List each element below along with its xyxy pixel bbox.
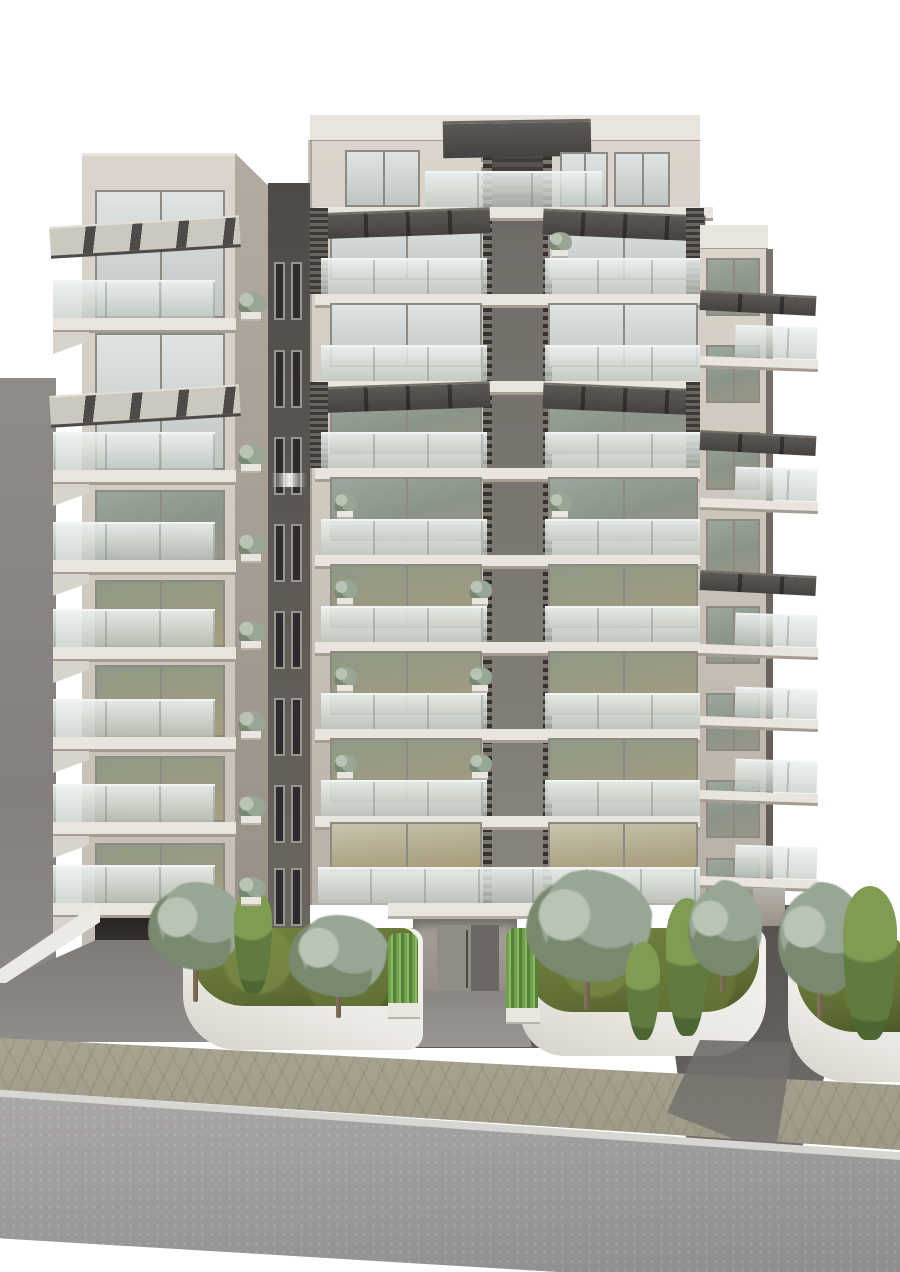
left-tower-balcony-slab [53, 560, 236, 575]
left-tower-balcony-slab [53, 822, 236, 837]
connector-window [274, 611, 285, 669]
balcony-bush [333, 667, 357, 687]
connector-window [291, 524, 302, 582]
right-wing-balcony-rail [735, 687, 818, 720]
right-wing-balcony-rail [734, 325, 817, 360]
architectural-rendering-canvas [0, 0, 900, 1272]
left-tower-balcony-slab [53, 470, 236, 485]
center-tower-window-right [548, 822, 698, 872]
left-tower-balcony-rail [53, 522, 215, 560]
center-tower-rail-right [545, 780, 705, 816]
right-wing-parapet [700, 225, 768, 249]
balcony-bush [236, 711, 266, 733]
olive-tree [288, 915, 390, 997]
connector-window [291, 868, 302, 926]
bamboo-planter-box [506, 1008, 540, 1024]
olive-tree [148, 882, 246, 970]
left-tower-balcony-rail [53, 784, 215, 822]
connector-window [274, 524, 285, 582]
connector-window [274, 262, 285, 320]
balcony-pot [472, 772, 488, 780]
bamboo-plant [388, 933, 418, 1005]
right-wing-balcony-rail [734, 759, 817, 794]
balcony-bush [333, 580, 357, 600]
center-tower-rail-left [321, 519, 487, 555]
balcony-pot [337, 598, 353, 606]
balcony-pot [241, 641, 261, 650]
center-tower-rail-right [545, 606, 705, 642]
penthouse-window [345, 150, 420, 207]
balcony-pot [337, 685, 353, 693]
right-wing-balcony-rail [734, 467, 817, 502]
right-wing-balcony-rail [734, 613, 817, 648]
olive-tree [688, 880, 762, 976]
balcony-bush [333, 754, 357, 774]
connector-window [291, 698, 302, 756]
left-tower-balcony-slab [53, 318, 236, 333]
center-tower-rail-left [321, 780, 487, 816]
connector-window [274, 868, 285, 926]
center-tower-rail-left [321, 606, 487, 642]
penthouse-terrace-rail [425, 171, 602, 207]
center-tower-rail-right [545, 258, 705, 294]
balcony-bush [236, 877, 266, 899]
connector-window [291, 611, 302, 669]
center-tower-window-left [330, 822, 482, 872]
neighboring-building-wall [0, 378, 56, 978]
connector-window [291, 350, 302, 408]
balcony-pot [241, 897, 261, 906]
left-tower-balcony-rail [53, 280, 215, 318]
center-tower-rail-right [545, 432, 705, 468]
center-tower-rail-left [321, 693, 487, 729]
center-tower-rail-left [321, 258, 487, 294]
balcony-bush [236, 796, 266, 818]
connector-window [274, 785, 285, 843]
balcony-bush [236, 621, 266, 643]
center-tower-rail-left [321, 432, 487, 468]
right-wing-window [706, 519, 760, 577]
penthouse-window [614, 152, 670, 207]
balcony-pot [241, 816, 261, 825]
balcony-pot [241, 731, 261, 740]
balcony-bush [548, 232, 572, 252]
balcony-pot [241, 464, 261, 473]
balcony-pot [552, 511, 568, 519]
balcony-pot [241, 312, 261, 321]
connector-window [291, 785, 302, 843]
balcony-bush [468, 754, 492, 774]
balcony-pot [241, 554, 261, 563]
balcony-pot [337, 511, 353, 519]
bamboo-planter-box [388, 1003, 420, 1019]
balcony-pot [472, 598, 488, 606]
left-tower-balcony-slab [53, 647, 236, 662]
balcony-bush [468, 667, 492, 687]
left-tower-balcony-slab [53, 737, 236, 752]
balcony-pot [337, 772, 353, 780]
balcony-pot [472, 685, 488, 693]
balcony-bush [236, 444, 266, 466]
entrance-door [437, 925, 499, 993]
center-tower-rail-left [321, 345, 487, 381]
connector-window [274, 698, 285, 756]
connector-window [291, 262, 302, 320]
left-tower-balcony-rail [53, 699, 215, 737]
balcony-bush [548, 493, 572, 513]
connector-lit-window-glow [271, 473, 307, 487]
connector-window [274, 350, 285, 408]
balcony-pot [552, 250, 568, 258]
balcony-bush [236, 534, 266, 556]
center-tower-rail-right [545, 519, 705, 555]
balcony-bush [468, 580, 492, 600]
center-tower-rail-right [545, 693, 705, 729]
balcony-bush [236, 292, 266, 314]
center-tower-rail-right [545, 345, 705, 381]
left-tower-balcony-rail [53, 609, 215, 647]
left-tower-balcony-rail [53, 432, 215, 470]
right-wing-balcony-rail [734, 845, 817, 880]
stair-core-strip [487, 140, 545, 905]
balcony-bush [333, 493, 357, 513]
